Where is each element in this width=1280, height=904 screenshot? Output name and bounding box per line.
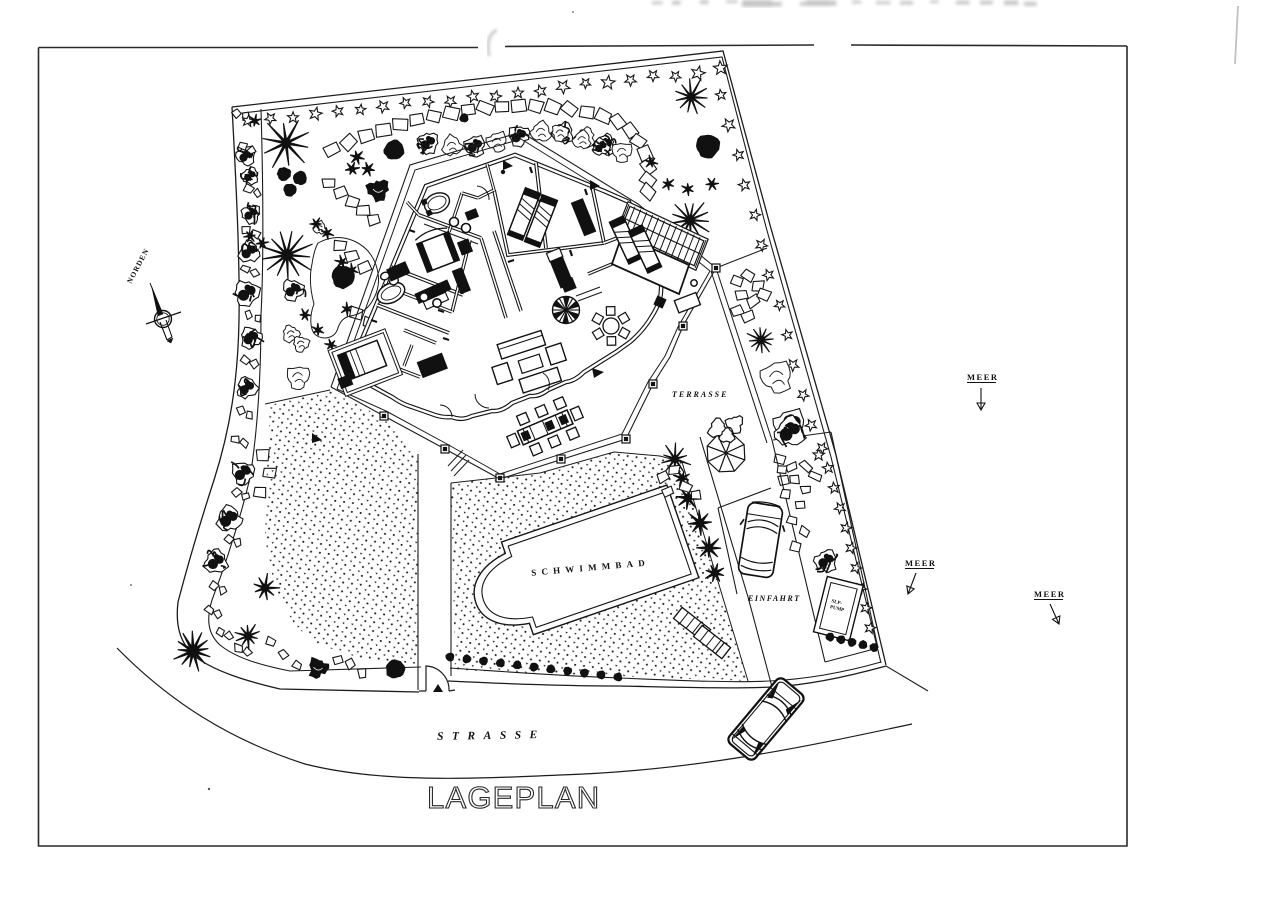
svg-text:MEER: MEER bbox=[1034, 589, 1066, 599]
svg-text:TERRASSE: TERRASSE bbox=[672, 390, 728, 399]
svg-text:EINFAHRT: EINFAHRT bbox=[747, 594, 801, 603]
svg-text:LAGEPLAN: LAGEPLAN bbox=[427, 780, 600, 815]
svg-text:STRASSE: STRASSE bbox=[437, 729, 546, 743]
svg-text:MEER: MEER bbox=[967, 372, 999, 382]
svg-text:MEER: MEER bbox=[905, 558, 937, 568]
